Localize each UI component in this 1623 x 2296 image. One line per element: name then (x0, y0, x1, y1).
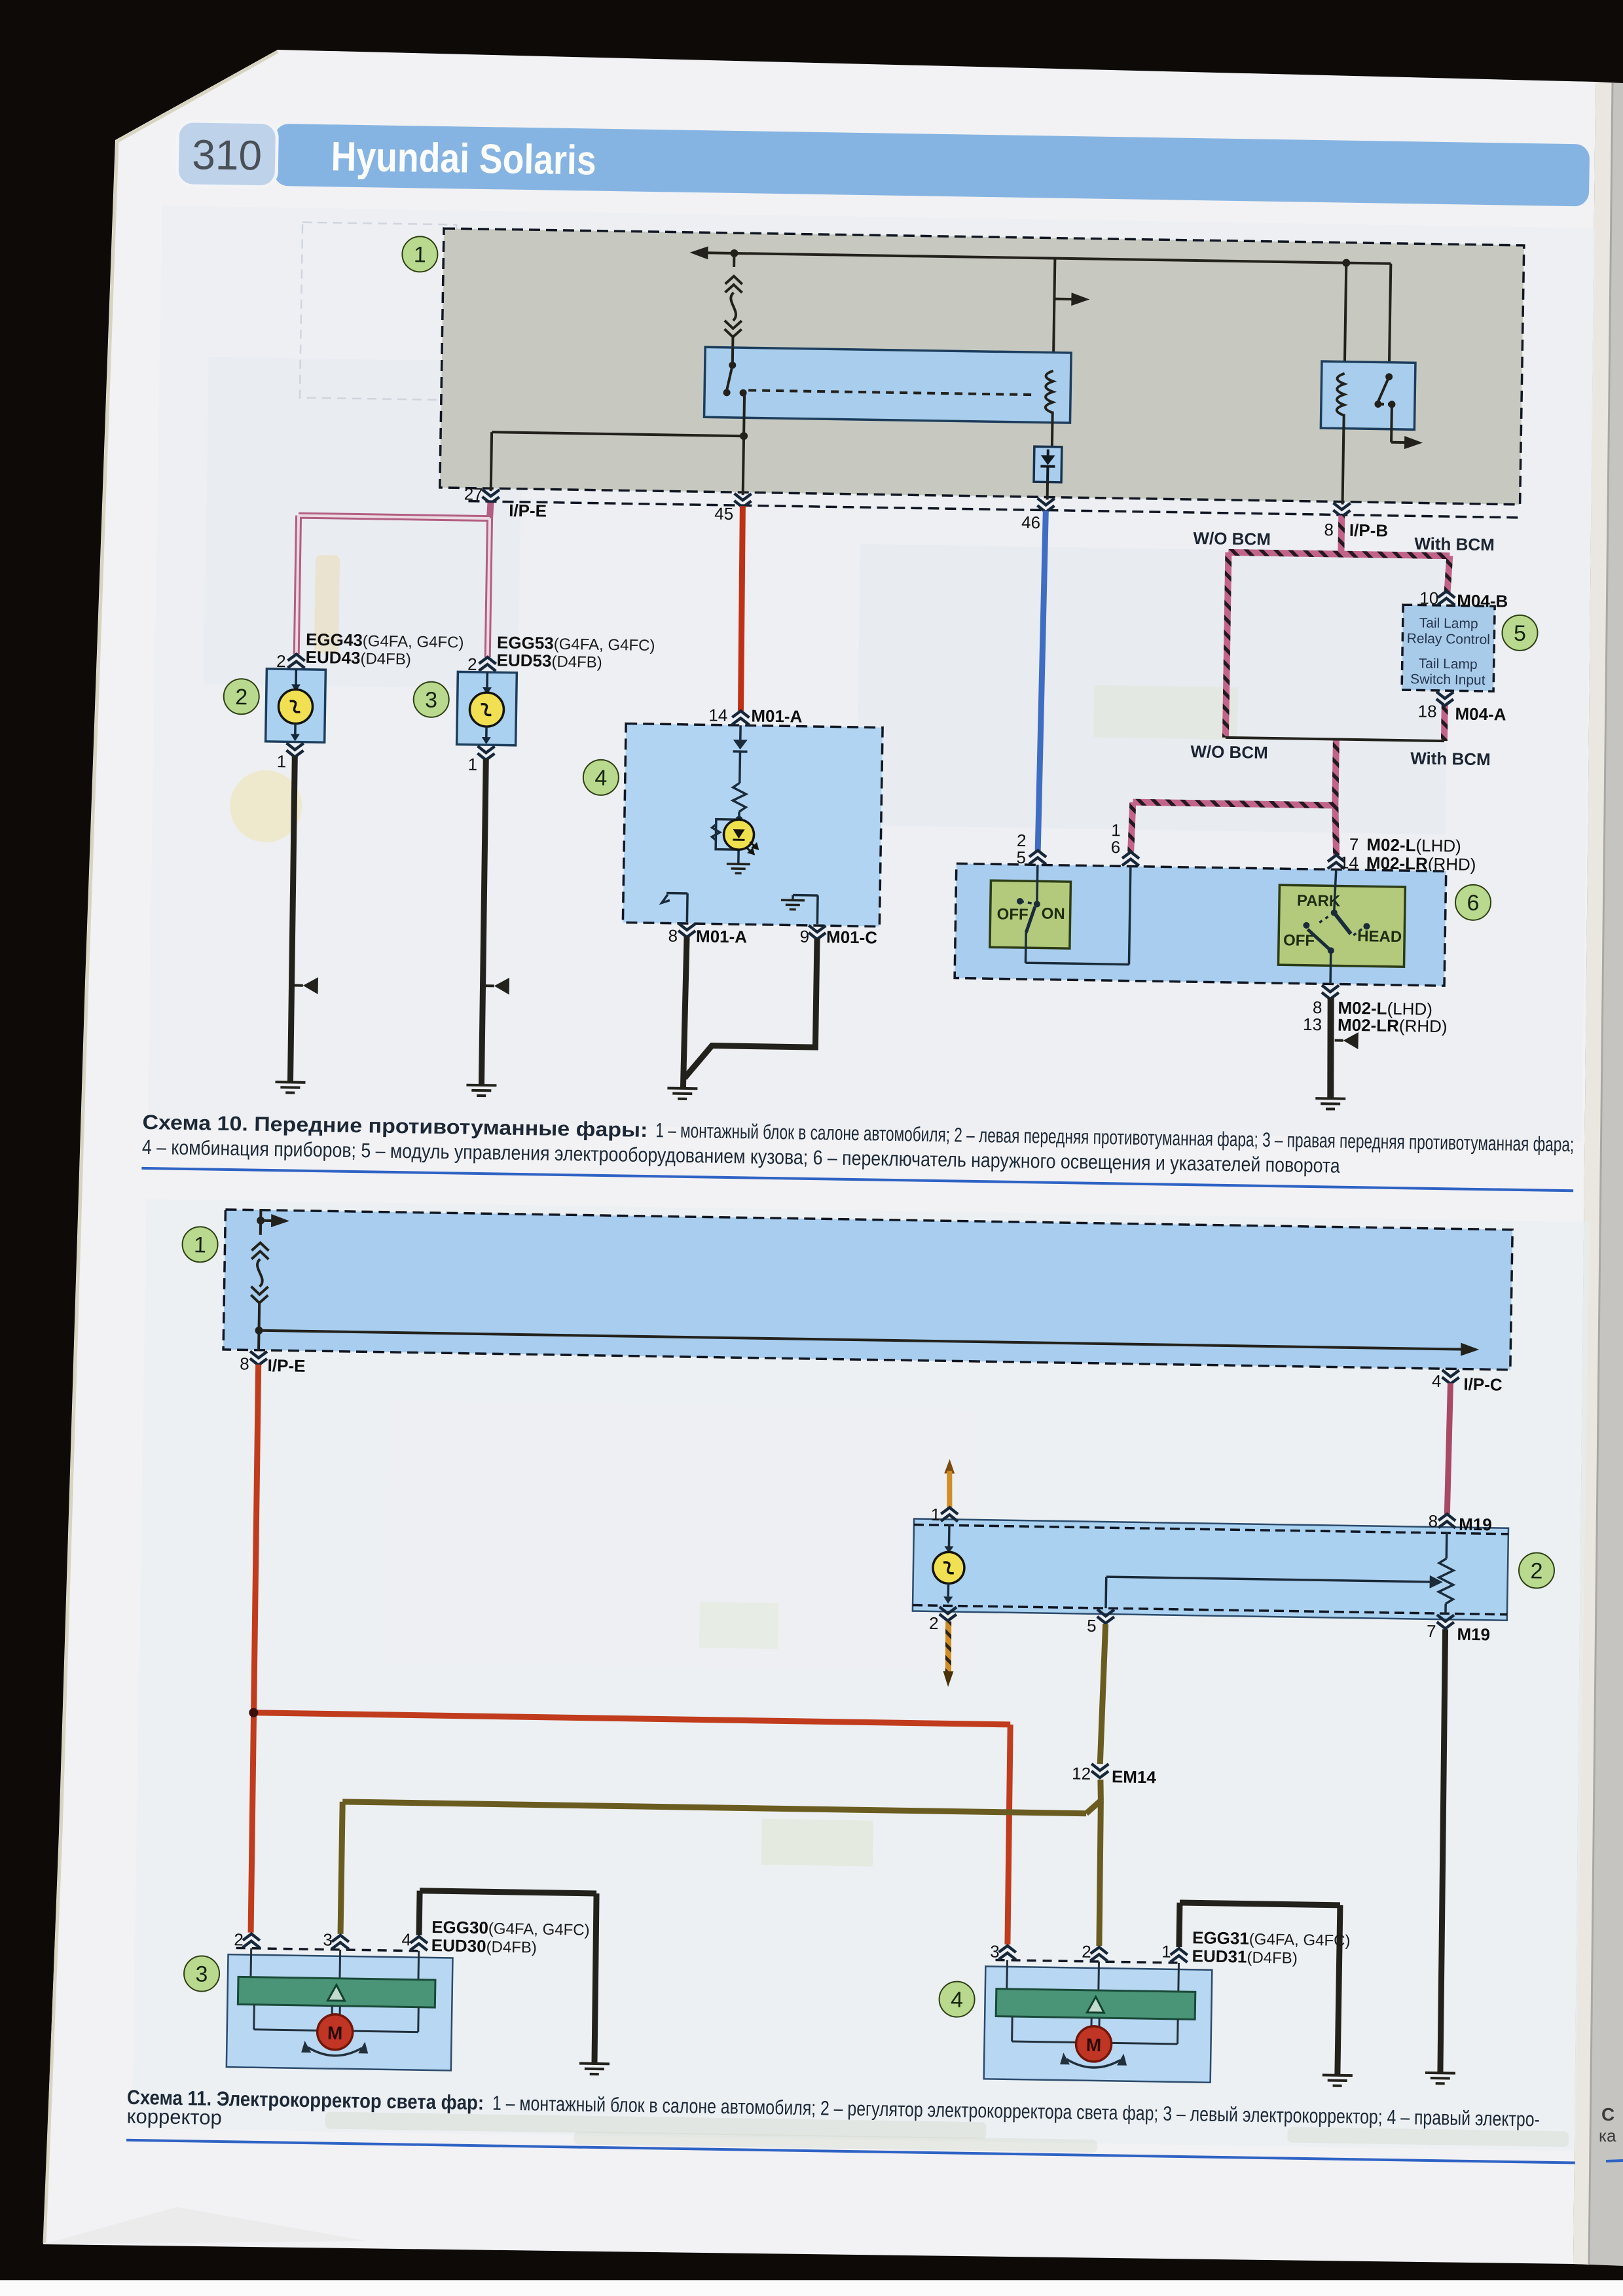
svg-text:ON: ON (1041, 905, 1065, 923)
svg-text:2: 2 (929, 1613, 939, 1633)
svg-text:M01-A: M01-A (751, 706, 803, 726)
svg-text:1: 1 (276, 751, 286, 771)
svg-text:M01-A: M01-A (696, 926, 748, 946)
svg-text:5: 5 (1087, 1616, 1097, 1636)
svg-text:M02-LR(RHD): M02-LR(RHD) (1338, 1015, 1448, 1037)
svg-text:13: 13 (1303, 1014, 1322, 1034)
svg-text:3: 3 (195, 1962, 208, 1986)
svg-text:W/O BCM: W/O BCM (1193, 528, 1271, 549)
svg-text:2: 2 (1530, 1558, 1543, 1583)
svg-text:I/P-E: I/P-E (509, 501, 547, 521)
svg-text:1: 1 (467, 755, 477, 774)
svg-text:Tail Lamp: Tail Lamp (1419, 615, 1478, 631)
svg-text:14: 14 (708, 705, 727, 725)
svg-text:4: 4 (1432, 1371, 1442, 1391)
svg-text:EUD31(D4FB): EUD31(D4FB) (1192, 1946, 1298, 1967)
svg-text:I/P-E: I/P-E (267, 1355, 305, 1376)
svg-text:ка: ка (1599, 2126, 1616, 2145)
svg-text:3: 3 (990, 1941, 1000, 1961)
svg-text:HEAD: HEAD (1357, 927, 1402, 946)
svg-text:Switch Input: Switch Input (1410, 672, 1486, 688)
svg-text:Relay Control: Relay Control (1407, 631, 1491, 647)
svg-text:1: 1 (931, 1505, 941, 1524)
svg-text:M: M (1086, 2035, 1102, 2055)
svg-text:M01-C: M01-C (826, 927, 878, 947)
svg-text:5: 5 (1514, 621, 1527, 646)
svg-text:310: 310 (192, 131, 263, 179)
svg-text:M04-A: M04-A (1455, 704, 1506, 724)
svg-text:С: С (1601, 2104, 1614, 2125)
svg-text:4: 4 (401, 1929, 411, 1949)
svg-text:M: M (327, 2023, 343, 2043)
svg-text:M19: M19 (1459, 1515, 1492, 1535)
svg-text:12: 12 (1072, 1763, 1091, 1783)
svg-text:45: 45 (714, 504, 733, 524)
svg-text:1: 1 (1161, 1942, 1171, 1962)
svg-text:OFF: OFF (996, 905, 1028, 924)
svg-text:2: 2 (276, 651, 286, 671)
svg-text:корректор: корректор (126, 2105, 222, 2129)
svg-text:2: 2 (234, 1929, 244, 1949)
svg-text:3: 3 (425, 688, 438, 713)
svg-text:With BCM: With BCM (1414, 533, 1495, 554)
svg-text:1: 1 (194, 1232, 207, 1257)
svg-text:EUD53(D4FB): EUD53(D4FB) (496, 650, 602, 672)
svg-text:8: 8 (1428, 1511, 1438, 1531)
svg-text:EUD30(D4FB): EUD30(D4FB) (431, 1935, 538, 1957)
svg-text:2: 2 (1082, 1942, 1091, 1962)
svg-text:6: 6 (1111, 837, 1121, 857)
svg-text:W/O BCM: W/O BCM (1190, 742, 1268, 762)
svg-text:4: 4 (594, 766, 608, 791)
svg-text:M04-B: M04-B (1457, 590, 1508, 611)
svg-text:9: 9 (799, 927, 809, 946)
svg-text:With BCM: With BCM (1410, 748, 1491, 769)
svg-text:8: 8 (668, 926, 678, 946)
svg-text:7: 7 (1349, 834, 1359, 854)
svg-text:8: 8 (1324, 520, 1334, 539)
svg-text:6: 6 (1467, 891, 1480, 916)
svg-text:EUD43(D4FB): EUD43(D4FB) (305, 647, 411, 669)
svg-text:3: 3 (323, 1929, 333, 1949)
svg-text:M19: M19 (1457, 1624, 1490, 1645)
svg-text:I/P-B: I/P-B (1349, 520, 1389, 541)
svg-text:2: 2 (467, 655, 477, 674)
svg-text:46: 46 (1021, 512, 1040, 532)
svg-text:27: 27 (464, 484, 483, 504)
svg-text:Tail Lamp: Tail Lamp (1419, 656, 1478, 672)
svg-text:1: 1 (414, 242, 427, 267)
svg-text:EM14: EM14 (1112, 1767, 1157, 1787)
svg-text:7: 7 (1427, 1621, 1436, 1641)
svg-text:18: 18 (1417, 701, 1436, 721)
svg-text:I/P-C: I/P-C (1463, 1374, 1503, 1395)
svg-text:10: 10 (1419, 588, 1438, 607)
svg-text:2: 2 (235, 685, 248, 709)
svg-text:Hyundai Solaris: Hyundai Solaris (331, 134, 596, 183)
svg-text:OFF: OFF (1283, 931, 1315, 950)
svg-text:4: 4 (951, 1987, 964, 2012)
svg-text:8: 8 (240, 1354, 249, 1373)
